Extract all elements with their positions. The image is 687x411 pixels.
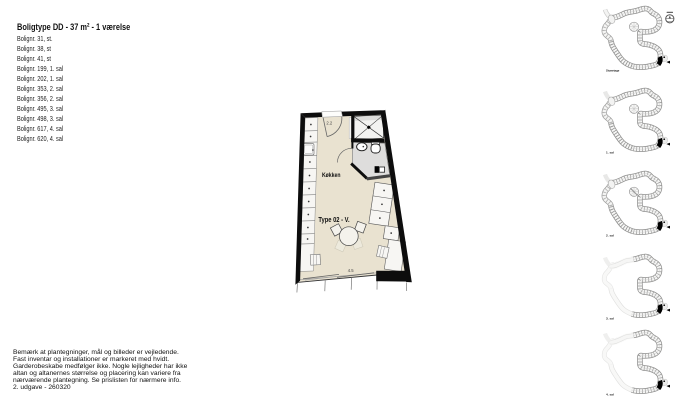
svg-text:4. sal: 4. sal: [606, 392, 614, 396]
svg-text:Type 02 - V.: Type 02 - V.: [318, 216, 349, 224]
svg-text:3. sal: 3. sal: [606, 316, 614, 320]
svg-text:Stueetage: Stueetage: [606, 68, 620, 72]
svg-text:2. sal: 2. sal: [606, 233, 614, 237]
svg-text:1. sal: 1. sal: [606, 150, 614, 154]
svg-text:4.5: 4.5: [348, 268, 354, 273]
svg-text:2.2: 2.2: [326, 121, 332, 126]
svg-text:Køkken: Køkken: [322, 173, 341, 179]
